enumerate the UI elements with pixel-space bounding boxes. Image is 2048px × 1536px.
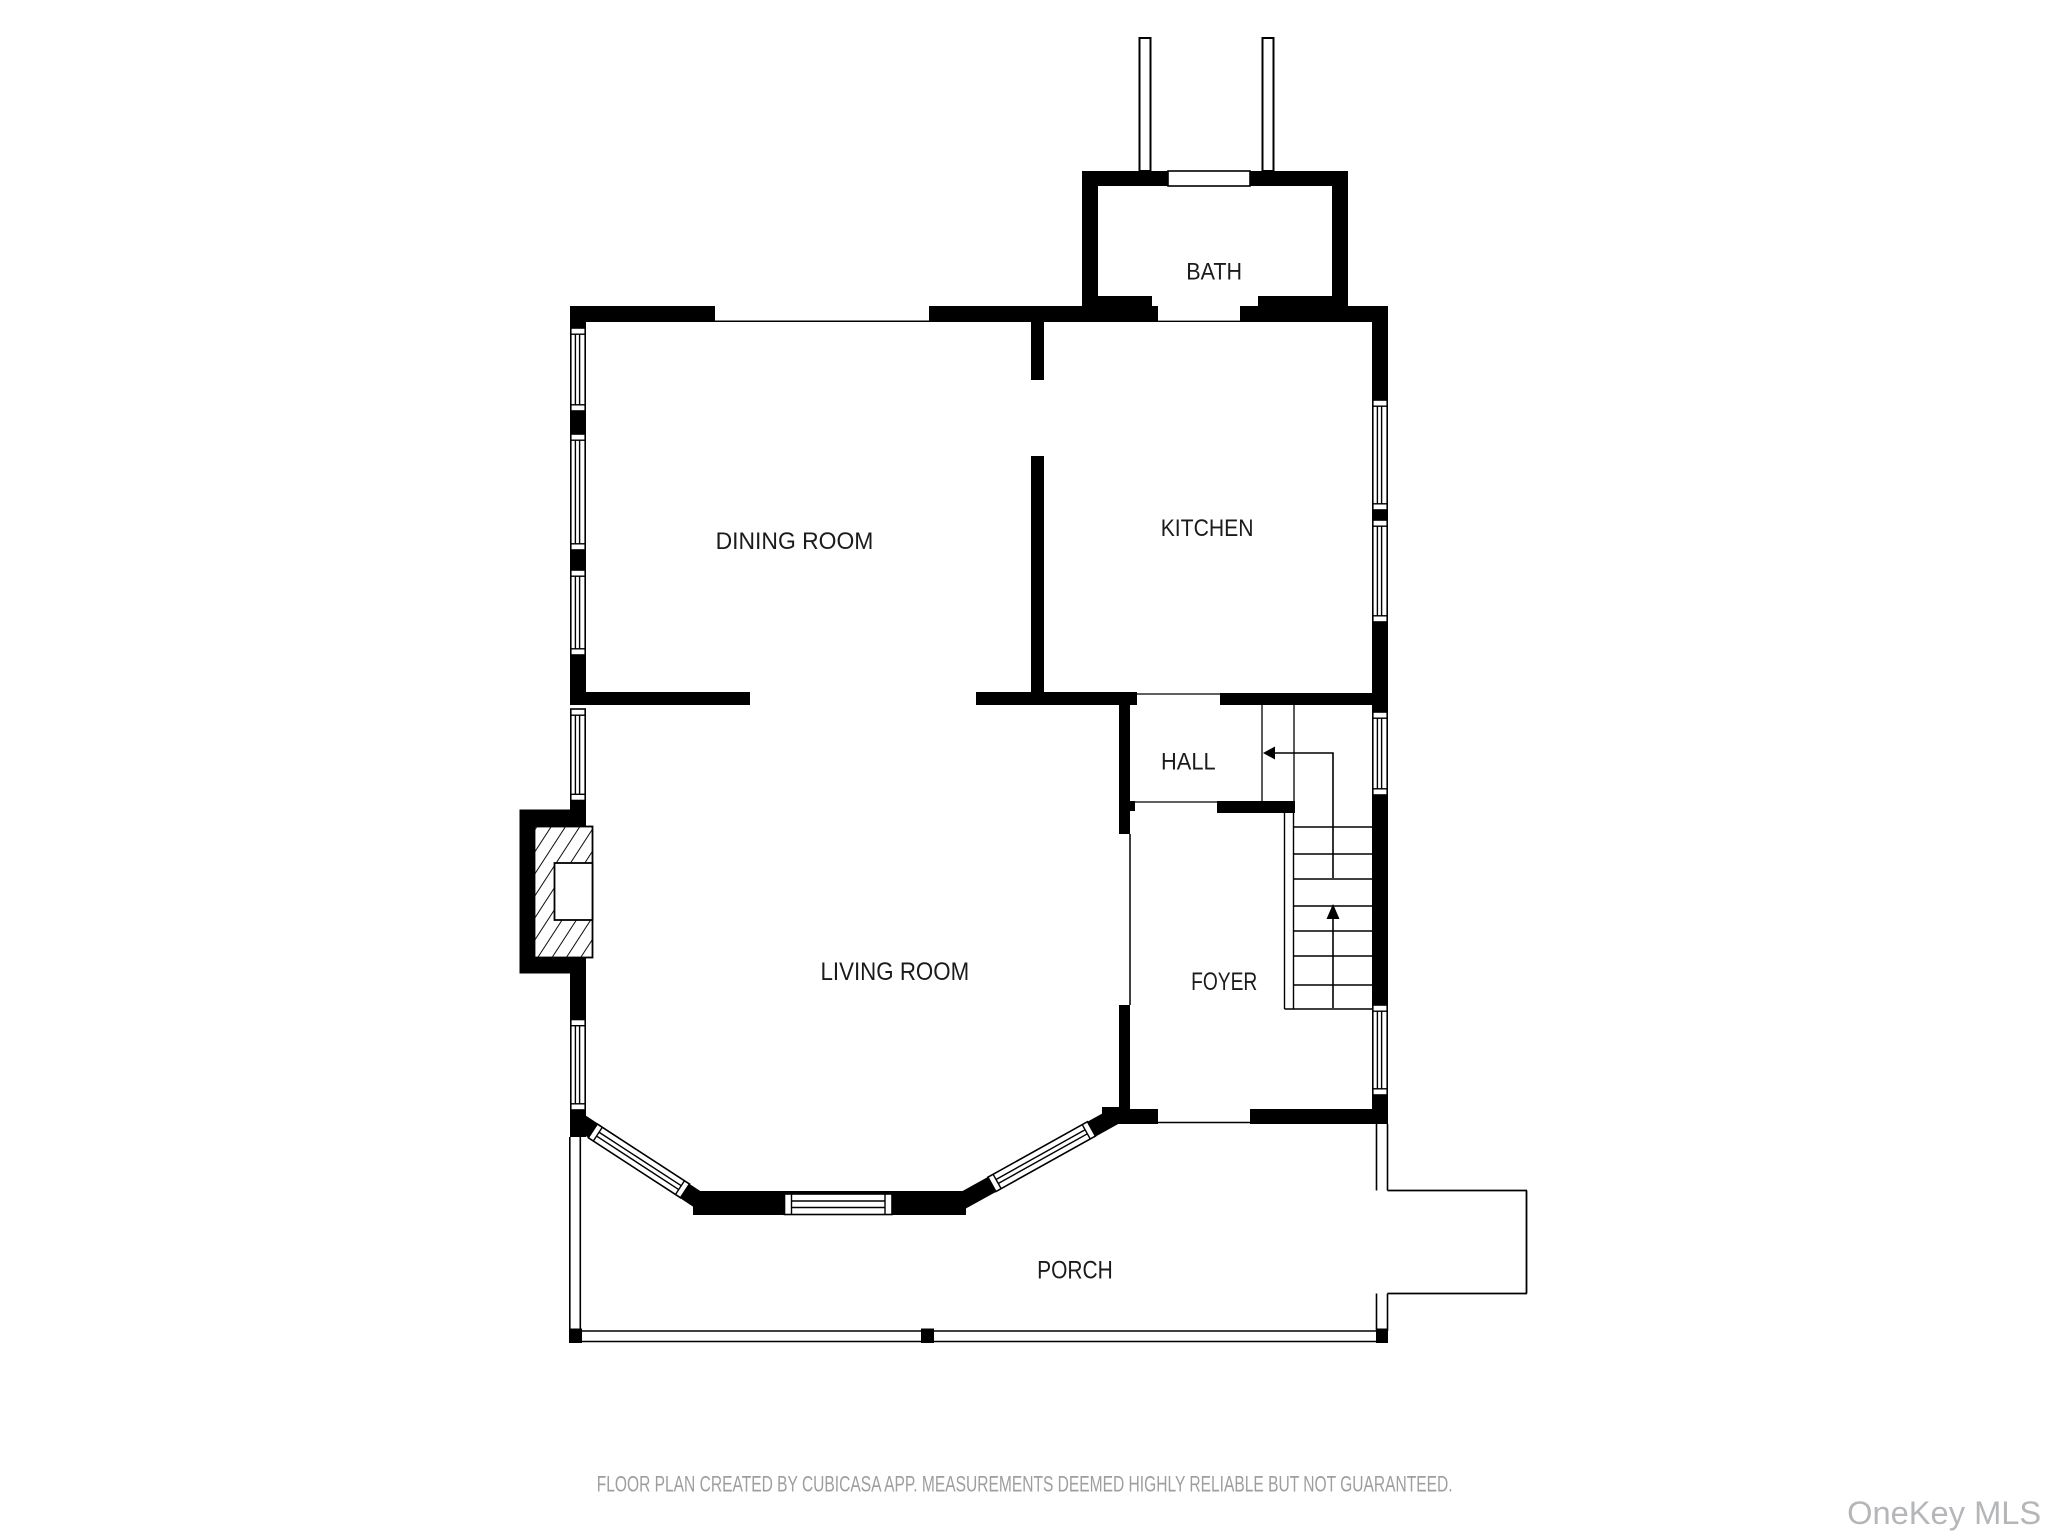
svg-text:KITCHEN: KITCHEN bbox=[1161, 515, 1254, 542]
svg-text:FOYER: FOYER bbox=[1191, 968, 1257, 996]
svg-text:LIVING ROOM: LIVING ROOM bbox=[821, 958, 970, 986]
svg-text:FLOOR PLAN CREATED BY CUBICASA: FLOOR PLAN CREATED BY CUBICASA APP. MEAS… bbox=[597, 1471, 1453, 1496]
svg-text:BATH: BATH bbox=[1186, 259, 1242, 286]
svg-text:HALL: HALL bbox=[1161, 748, 1216, 775]
svg-text:OneKey MLS: OneKey MLS bbox=[1847, 1495, 2041, 1531]
svg-text:DINING ROOM: DINING ROOM bbox=[716, 528, 874, 555]
svg-text:PORCH: PORCH bbox=[1037, 1257, 1113, 1285]
